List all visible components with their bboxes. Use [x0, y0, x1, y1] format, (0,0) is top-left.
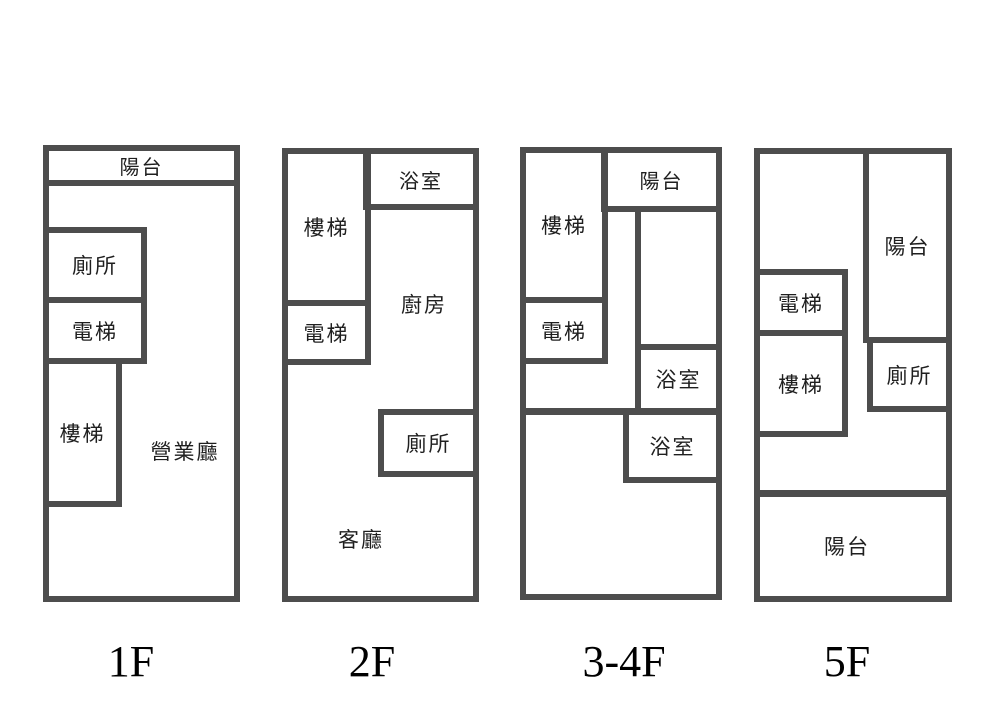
room-label: 樓梯 [778, 369, 824, 399]
floor-caption-1f: 1F [108, 640, 154, 684]
room-34f-elevator: 電梯 [526, 303, 608, 364]
room-5f-balcony-right: 陽台 [863, 154, 946, 343]
room-34f-stairs: 樓梯 [526, 153, 608, 303]
floor-plan-diagram: 陽台 廁所 電梯 樓梯 營業廳 樓梯 電梯 浴室 廁所 廚房 客廳 樓梯 [0, 0, 1000, 721]
room-label: 電梯 [541, 316, 587, 346]
room-label: 電梯 [304, 318, 350, 348]
floor-caption-2f: 2F [349, 640, 395, 684]
room-1f-business-hall-label: 營業廳 [151, 436, 220, 466]
interior-wall [526, 408, 635, 415]
room-2f-stairs: 樓梯 [288, 154, 371, 306]
room-1f-elevator: 電梯 [49, 303, 147, 364]
floor-plan-5f: 陽台 廁所 電梯 樓梯 陽台 [754, 148, 952, 602]
interior-wall [760, 490, 946, 497]
room-label: 廁所 [887, 360, 933, 390]
room-label: 樓梯 [541, 210, 587, 240]
room-label: 樓梯 [60, 418, 106, 448]
room-label: 廁所 [406, 428, 452, 458]
room-34f-bathroom-lower: 浴室 [623, 415, 716, 483]
room-label: 陽台 [885, 231, 931, 261]
room-1f-stairs: 樓梯 [49, 364, 122, 507]
room-label: 廁所 [72, 250, 118, 280]
room-label: 電梯 [72, 316, 118, 346]
floor-plan-1f: 陽台 廁所 電梯 樓梯 營業廳 [43, 145, 240, 602]
floor-caption-5f: 5F [824, 640, 870, 684]
room-2f-kitchen-label: 廚房 [401, 289, 447, 319]
room-label: 浴室 [399, 165, 443, 194]
floor-caption-3-4f: 3-4F [582, 640, 665, 684]
room-1f-balcony: 陽台 [49, 151, 234, 186]
room-34f-balcony: 陽台 [601, 153, 716, 212]
floor-plan-2f: 樓梯 電梯 浴室 廁所 廚房 客廳 [282, 148, 479, 602]
room-label: 陽台 [120, 151, 164, 180]
room-label: 浴室 [650, 431, 696, 461]
room-1f-toilet: 廁所 [49, 227, 147, 303]
room-5f-toilet: 廁所 [867, 343, 946, 412]
room-label: 樓梯 [304, 212, 350, 242]
room-2f-living-room-label: 客廳 [338, 524, 384, 554]
room-34f-unlabeled [635, 212, 716, 350]
room-5f-balcony-bottom-label: 陽台 [824, 531, 870, 561]
room-label: 電梯 [778, 288, 824, 318]
room-label: 浴室 [656, 364, 702, 394]
room-2f-elevator: 電梯 [288, 306, 371, 365]
room-5f-stairs: 樓梯 [760, 336, 848, 437]
room-34f-bathroom-upper: 浴室 [635, 350, 716, 415]
room-2f-toilet: 廁所 [378, 409, 473, 477]
floor-plan-3-4f: 樓梯 電梯 陽台 浴室 浴室 [520, 147, 722, 600]
room-2f-bathroom: 浴室 [363, 154, 473, 210]
room-label: 陽台 [640, 165, 684, 194]
room-5f-elevator: 電梯 [760, 269, 848, 336]
